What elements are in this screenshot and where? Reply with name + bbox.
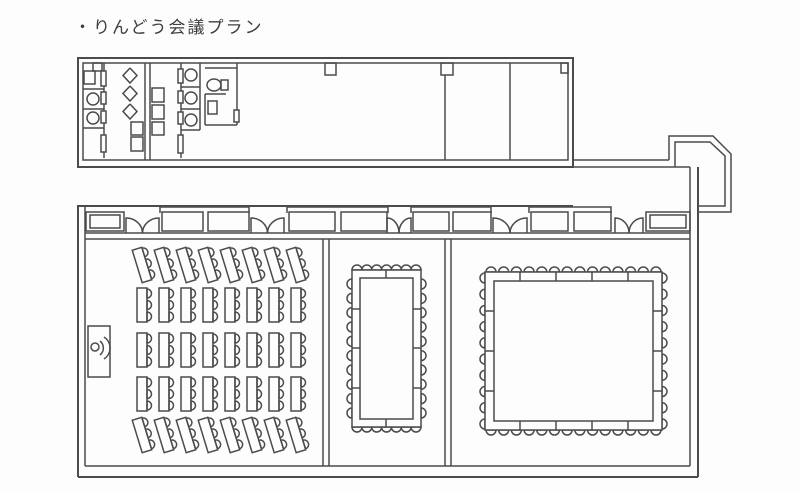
- rindou-plan-page: ・りんどう会議プラン: [0, 0, 800, 490]
- medium-boardroom-table: [347, 265, 426, 432]
- corridor-and-entry: [573, 136, 731, 212]
- restroom-partition-wall: [145, 63, 150, 160]
- lectern: [88, 326, 110, 377]
- upper-block-room-dividers: [445, 63, 510, 160]
- upper-block-pillars: [93, 63, 568, 75]
- window-door-band: [86, 207, 690, 233]
- accessible-restroom: [205, 63, 239, 125]
- restroom-sinks: [152, 88, 164, 135]
- restroom-right-stalls: [178, 63, 200, 158]
- floor-plan-svg: [0, 0, 800, 490]
- restroom-urinals: [123, 68, 143, 151]
- large-boardroom-table: [480, 267, 667, 435]
- restroom-left-stalls: [83, 63, 106, 158]
- classroom-seating: [132, 246, 310, 453]
